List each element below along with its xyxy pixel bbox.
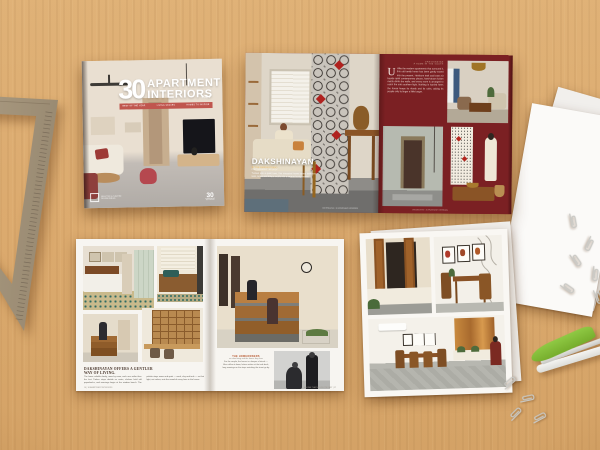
nook-floor [436,302,504,313]
photo-living-room [447,61,509,124]
dining-table [397,353,445,359]
veranda-shrub [368,299,380,309]
door-leaf [148,102,162,164]
feature-left-page-photo: DAKSHINAYAN BY THE DESIGN STUDIO PHOTOGR… [244,53,379,213]
feature-title-block: DAKSHINAYAN BY THE DESIGN STUDIO PHOTOGR… [252,157,316,179]
tile-floor-grey [370,365,507,391]
brass-urli-bowl [467,183,479,188]
feature-credit: PHOTOGRAPHY · AS SHOT [252,169,316,172]
kolam-wall [310,53,349,193]
kicker-line2: A HOME IN THE SOUTH [388,63,444,65]
magazine-cover: 30 APARTMENT INTERIORS 2024 BEST OF THE … [82,59,225,208]
wood-low-table [452,187,494,201]
standing-woman [485,137,497,181]
shelf-grid [152,310,200,344]
photo-heritage-door [382,126,443,207]
feature-kicker: DAKSHINAYAN A HOME IN THE SOUTH [388,61,444,65]
feature-right-page: DAKSHINAYAN A HOME IN THE SOUTH U nlike … [378,54,512,214]
bedroom-door [122,254,132,294]
wall-clock [301,262,312,273]
portrait-man-standing [306,355,318,389]
seated-woman-maroon [490,341,502,365]
nook-blinds [161,248,195,270]
kolam-divider [451,127,474,185]
wardrobe-mint [134,250,154,298]
feature-left-caption: DAKSHINAYAN · 30 APARTMENT INTERIORS [322,208,358,210]
tv-panel [183,119,216,154]
feature-right-caption: DAKSHINAYAN · 30 APARTMENT INTERIORS [412,209,448,211]
portrait-man-head [309,352,315,358]
publisher-line2: DESIGN ANNUAL [101,197,121,199]
nook-chair-right [479,273,492,299]
swing-chain [434,126,435,172]
spread-feature: DAKSHINAYAN BY THE DESIGN STUDIO PHOTOGR… [244,53,512,214]
climbing-figure [99,322,107,340]
photo-tiered-steps [217,246,338,348]
dining-frames [403,334,413,346]
ceiling-fan-rod [108,75,110,84]
story-fold-shadow [204,239,216,391]
story-headline-line2: WAY OF LIVING. [84,371,204,375]
red-cushion [95,148,109,160]
paper-clip-9 [506,403,527,424]
story-right-page: THE HOMEOWNERS on slow living and the ho… [210,239,344,391]
console-leg-left [348,136,351,180]
seated-person-sari [267,298,278,324]
artwork-figure-3 [475,248,480,255]
wall-shelves [248,81,258,83]
feature-body-text: nlike the modern apartments that surroun… [387,68,443,95]
photo-kolam-screen [446,127,508,208]
feature-dropcap: U [387,68,395,77]
artwork-figure-1 [445,251,450,258]
step-plinth [392,194,432,200]
spread-fold-shadow [372,54,385,213]
page-stack-edge [507,55,512,214]
grass-tuft [306,329,328,336]
page-pillars [359,229,512,398]
story-footer-left: 16 | 30 APARTMENT INTERIORS [84,387,112,389]
steps-doorway [118,320,130,350]
window-left [447,69,453,103]
band-item-1: BEST OF THE YEAR [123,105,146,107]
nook-floor-teal [157,294,203,302]
blue-rug [244,199,288,212]
photo-veranda-pillars [366,237,432,315]
nook-plant [449,268,455,276]
photo-study-shelves [142,308,203,362]
bio-block: THE HOMEOWNERS on slow living and the ho… [222,355,270,370]
bed-white [83,274,125,292]
feature-title: DAKSHINAYAN [252,157,316,167]
badge-caption: APARTMENT INTERIORS [202,199,218,201]
portrait-woman-seated [286,367,302,389]
wall-art-frames [91,117,115,135]
story-body-columns: The home unfolds slowly, room by room, e… [84,376,204,385]
desk-scene: 30 APARTMENT INTERIORS 2024 BEST OF THE … [0,0,600,450]
story-footer-right: A HOME THAT HOLDS ITS PAST | 17 [304,387,336,389]
brass-head-sculpture [353,106,369,130]
standing-woman-head [488,133,494,140]
wooden-set-square [0,88,80,338]
chandelier-icon [472,63,486,71]
feature-intro: Tucked into a quiet lane, this ancestral… [252,172,316,179]
cover-year: 2024 [201,94,210,99]
photo-steps-person [83,314,138,362]
artwork-figure-2 [460,249,465,256]
black-vase [191,147,197,155]
cover-badge: 30 APARTMENT INTERIORS [202,193,218,201]
stapler [525,314,600,382]
portrait-woman-head [292,362,298,368]
seated-person-jacket [247,280,257,300]
bedroom-frames [89,252,101,262]
photo-portrait-bw [274,351,330,389]
nook-cushion-teal [163,270,179,277]
band-item-2: LIVING SPACES [157,104,175,106]
old-teak-door [404,140,422,188]
kolam-pattern [310,53,349,193]
ac-unit [378,323,406,331]
dark-doors-left [219,254,228,306]
band-item-3: HOMES TO INSPIRE [186,104,209,106]
photo-dining-nook [434,235,504,313]
story-headline: DAKSHINAYAN OFFERS A GENTLER WAY OF LIVI… [84,367,204,375]
media-console [177,154,219,167]
photo-window-nook [157,246,203,302]
bio-body: For the couple, the house is a keeper of… [222,361,270,370]
publisher-logo-mark [90,193,99,202]
set-square-body [0,90,58,331]
sofa-cushion [293,141,304,150]
basket [494,185,504,197]
red-stool [140,168,157,184]
feature-body-block: U nlike the modern apartments that surro… [387,68,443,95]
coffee-table-wood [469,103,491,112]
paper-clip-4 [590,264,600,285]
cover-number: 30 [118,76,144,102]
bio-subtitle: on slow living and the house they love [222,358,270,360]
desk-chairs [150,348,160,358]
spread-story: DAKSHINAYAN OFFERS A GENTLER WAY OF LIVI… [76,239,344,391]
photo-dining-room [368,315,506,391]
publisher-logo: SELECTED & CURATED DESIGN ANNUAL [90,193,121,203]
paper-clip-10 [529,409,551,426]
ledge-plants [457,346,465,352]
photo-bedroom [83,246,154,310]
story-left-page: DAKSHINAYAN OFFERS A GENTLER WAY OF LIVI… [76,239,210,391]
window-blinds [269,69,311,125]
plant-green [487,87,494,97]
